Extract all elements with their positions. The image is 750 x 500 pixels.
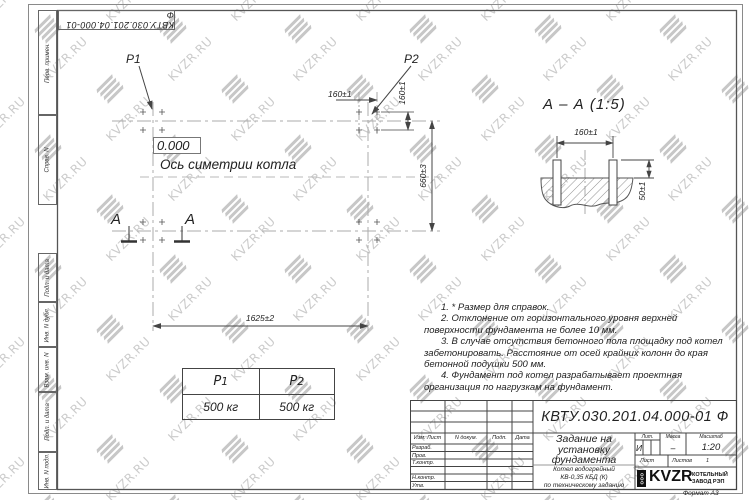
dim-group-horizontal: 160±1: [328, 89, 352, 99]
loads-table: P1 P2 500 кг 500 кг: [182, 368, 335, 420]
mass-value: –: [660, 443, 686, 453]
zero-level-value: 0.000: [157, 138, 190, 153]
watermark-logo-icon: [659, 15, 687, 43]
sig-row-utv: Утв.: [412, 483, 425, 489]
cut-letter-a-left: A: [111, 211, 121, 228]
watermark-logo-icon: [534, 135, 562, 163]
scale-value: 1:20: [686, 442, 736, 453]
watermark-text: KVZR.RU: [0, 94, 28, 144]
loads-header-p1: P1: [183, 369, 259, 394]
mass-label: Масса: [660, 434, 686, 440]
watermark-logo-icon: [409, 495, 437, 500]
p-symbol: P: [289, 374, 297, 389]
watermark-text: KVZR.RU: [228, 454, 278, 500]
dim-section-bolts: 160±1: [556, 127, 616, 137]
watermark-text: KVZR.RU: [353, 214, 403, 264]
company-logo-brand: KVZR: [649, 468, 693, 486]
sheets-value: 1: [706, 458, 709, 464]
watermark-logo-icon: [346, 195, 374, 223]
watermark-logo-icon: [721, 195, 749, 223]
watermark-text: KVZR.RU: [103, 454, 153, 500]
sheets-label: Листов: [672, 458, 692, 464]
watermark-logo-icon: [221, 195, 249, 223]
watermark-logo-icon: [284, 15, 312, 43]
product-line-1: Котел водогрейный: [533, 466, 635, 474]
product-line-2: КВ-0,35 КБД (К): [533, 474, 635, 482]
watermark-logo-icon: [409, 255, 437, 283]
margin-label: Инв. N дубл.: [45, 307, 51, 342]
watermark-logo-icon: [221, 75, 249, 103]
watermark-text: KVZR.RU: [228, 94, 278, 144]
title-block-document-title: Задание на установку фундамента: [533, 434, 635, 466]
margin-strip-sprav-n: Справ. N: [38, 115, 57, 205]
watermark-logo-icon: [159, 255, 187, 283]
watermark-logo-icon: [659, 135, 687, 163]
watermark-logo-icon: [96, 315, 124, 343]
watermark-logo-icon: [284, 495, 312, 500]
lit-label: Лит.: [635, 434, 660, 440]
watermark-text: KVZR.RU: [478, 214, 528, 264]
loads-value-p1: 500 кг: [183, 394, 259, 419]
note-3: 3. В случае отсутствия бетонного пола пл…: [424, 336, 729, 370]
sig-header-izm-list: Изм. Лист: [410, 435, 445, 441]
watermark-text: KVZR.RU: [103, 94, 153, 144]
watermark-text: KVZR.RU: [353, 0, 403, 24]
margin-strip-podp-data-1: Подп. и дата: [38, 253, 57, 302]
margin-label: Подп. и дата: [45, 259, 51, 297]
watermark-logo-icon: [159, 495, 187, 500]
watermark-logo-icon: [596, 195, 624, 223]
sig-header-n-dokum: N докум.: [445, 435, 487, 441]
watermark-text: KVZR.RU: [603, 214, 653, 264]
top-stamp-box: КВТУ.030.201.04.000-01 Ф: [58, 10, 175, 30]
watermark-text: KVZR.RU: [228, 214, 278, 264]
title-line-3: фундамента: [533, 455, 635, 466]
margin-strip-inv-dubl: Инв. N дубл.: [38, 302, 57, 347]
sig-header-podp: Подп.: [487, 435, 512, 441]
watermark-text: KVZR.RU: [103, 334, 153, 384]
zero-level-mark: 0.000: [153, 137, 201, 154]
company-name-line-1: КОТЕЛЬНЫЙ: [692, 472, 728, 478]
watermark-text: KVZR.RU: [478, 94, 528, 144]
format-label: Формат А3: [683, 490, 719, 497]
margin-label: Инв. N подл.: [45, 453, 51, 488]
margin-strip-vzam-inv: Взам. инв. N: [38, 347, 57, 392]
watermark-logo-icon: [534, 495, 562, 500]
margin-strip-inv-podl: Инв. N подл.: [38, 452, 57, 490]
dim-group-vertical: 160±1: [397, 73, 407, 113]
product-line-3: по техническому заданию: [533, 482, 635, 490]
watermark-logo-icon: [471, 195, 499, 223]
watermark-text: KVZR.RU: [228, 0, 278, 24]
watermark-text: KVZR.RU: [0, 334, 28, 384]
sig-row-tkontr: Т.контр.: [412, 460, 434, 466]
sig-row-nkontr: Н.контр.: [412, 475, 435, 481]
dim-foundation-length: 1625±2: [230, 313, 290, 323]
margin-label: Перв. примен.: [45, 43, 51, 83]
watermark-text: KVZR.RU: [353, 454, 403, 500]
watermark-text: KVZR.RU: [0, 214, 28, 264]
load-point-p2-label: P2: [404, 52, 419, 66]
title-block-doc-number: КВТУ.030.201.04.000-01 Ф: [533, 403, 737, 431]
load-point-p1-label: P1: [126, 52, 141, 66]
note-2: 2. Отклонение от горизонтального уровня …: [424, 313, 729, 336]
watermark-logo-icon: [34, 495, 62, 500]
loads-value-p2: 500 кг: [259, 394, 335, 419]
watermark-logo-icon: [346, 435, 374, 463]
watermark-logo-icon: [534, 255, 562, 283]
cut-letter-a-right: A: [185, 211, 195, 228]
scale-label: Масштаб: [686, 434, 736, 440]
note-1: 1. * Размер для справок.: [424, 302, 729, 313]
margin-strip-perv-primen: Перв. примен.: [38, 10, 57, 115]
drawing-sheet: KVZR.RUKVZR.RUKVZR.RUKVZR.RUKVZR.RUKVZR.…: [0, 0, 750, 500]
p-symbol: P: [213, 374, 221, 389]
sig-header-data: Дата: [512, 435, 533, 441]
dim-foundation-width: 660±3: [418, 154, 428, 198]
watermark-text: KVZR.RU: [0, 0, 28, 24]
watermark-logo-icon: [284, 255, 312, 283]
sig-row-prov: Пров.: [412, 453, 427, 459]
watermark-text: KVZR.RU: [353, 94, 403, 144]
dim-section-height: 50±1: [637, 171, 647, 211]
watermark-logo-icon: [409, 15, 437, 43]
lit-value: И: [635, 443, 643, 453]
watermark-text: KVZR.RU: [0, 454, 28, 500]
loads-header-p2: P2: [259, 369, 335, 394]
margin-label: Справ. N: [45, 147, 51, 172]
p-subscript: 2: [297, 375, 304, 388]
watermark-logo-icon: [221, 435, 249, 463]
margin-label: Взам. инв. N: [45, 352, 51, 387]
watermark-logo-icon: [96, 75, 124, 103]
watermark-logo-icon: [721, 75, 749, 103]
watermark-text: KVZR.RU: [603, 0, 653, 24]
margin-label: Подп. и дата: [45, 403, 51, 441]
company-name-line-2: ЗАВОД РЭП: [692, 479, 724, 485]
p-subscript: 1: [221, 375, 228, 388]
watermark-logo-icon: [471, 75, 499, 103]
watermark-text: KVZR.RU: [353, 334, 403, 384]
watermark-logo-icon: [534, 15, 562, 43]
watermark-logo-icon: [96, 435, 124, 463]
technical-notes: 1. * Размер для справок. 2. Отклонение о…: [424, 302, 729, 393]
note-4: 4. Фундамент под котел разрабатывает про…: [424, 370, 729, 393]
section-title: А – А (1:5): [543, 96, 626, 113]
title-line-1: Задание на: [533, 434, 635, 445]
sheet-label: Лист: [640, 458, 654, 464]
watermark-logo-icon: [659, 255, 687, 283]
title-block-product: Котел водогрейный КВ-0,35 КБД (К) по тех…: [533, 466, 635, 490]
watermark-text: KVZR.RU: [478, 454, 528, 500]
watermark-logo-icon: [346, 315, 374, 343]
margin-strip-podp-data-2: Подп. и дата: [38, 392, 57, 452]
company-logo-ooo: ООО: [637, 470, 646, 487]
sig-row-razrab: Разраб.: [412, 445, 432, 451]
top-stamp-number: КВТУ.030.201.04.000-01 Ф: [59, 10, 174, 30]
symmetry-axis-label: Ось симетрии котла: [160, 157, 296, 172]
watermark-text: KVZR.RU: [478, 0, 528, 24]
ooo-text: ООО: [639, 472, 644, 484]
